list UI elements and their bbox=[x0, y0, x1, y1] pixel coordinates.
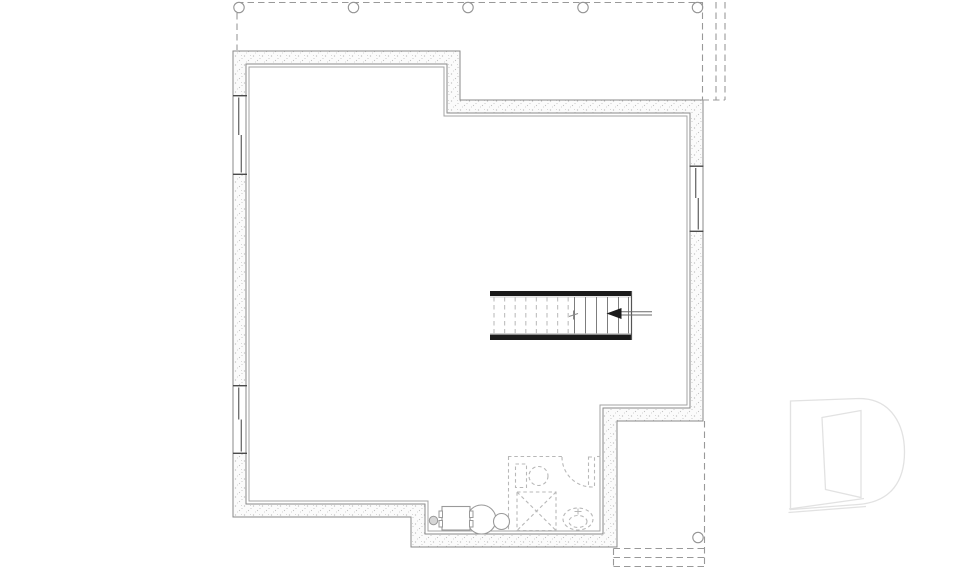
floor-plan-page bbox=[0, 0, 960, 569]
furnace-tab-right-top bbox=[470, 511, 474, 518]
interior-finish-line bbox=[249, 67, 687, 531]
window-left-lower-blank bbox=[234, 387, 246, 453]
furnace-tab-right-bottom bbox=[470, 521, 474, 528]
bath-roughin-toilet-bowl bbox=[529, 467, 548, 486]
floor-plan-canvas bbox=[0, 0, 960, 569]
stair-nosing-bar-top bbox=[490, 291, 632, 296]
bath-roughin-door-leaf bbox=[589, 457, 595, 487]
deck-post-1 bbox=[234, 2, 244, 12]
brand-logo-door bbox=[822, 411, 861, 498]
brand-logo-outer bbox=[791, 399, 905, 510]
foundation-wall bbox=[233, 51, 703, 547]
furnace-tab-left-bottom bbox=[439, 521, 443, 528]
patio-post bbox=[693, 532, 703, 542]
deck-post-4 bbox=[578, 2, 588, 12]
bath-roughin-toilet-tank bbox=[516, 464, 527, 488]
deck-post-2 bbox=[348, 2, 358, 12]
bath-roughin-sink-bowl bbox=[569, 516, 587, 528]
deck-post-3 bbox=[463, 2, 473, 12]
stair-direction-arrowhead bbox=[607, 308, 622, 319]
expansion-tank bbox=[494, 514, 510, 530]
furnace bbox=[442, 507, 470, 531]
window-left-upper-blank bbox=[234, 97, 246, 174]
floor-drain bbox=[429, 516, 437, 524]
furnace-tab-left-top bbox=[439, 511, 443, 518]
water-heater bbox=[467, 505, 496, 534]
stair-nosing-bar-bottom bbox=[490, 335, 632, 341]
bath-roughin-door-swing bbox=[562, 457, 592, 487]
window-right-blank bbox=[691, 167, 703, 231]
deck-post-5 bbox=[692, 2, 702, 12]
